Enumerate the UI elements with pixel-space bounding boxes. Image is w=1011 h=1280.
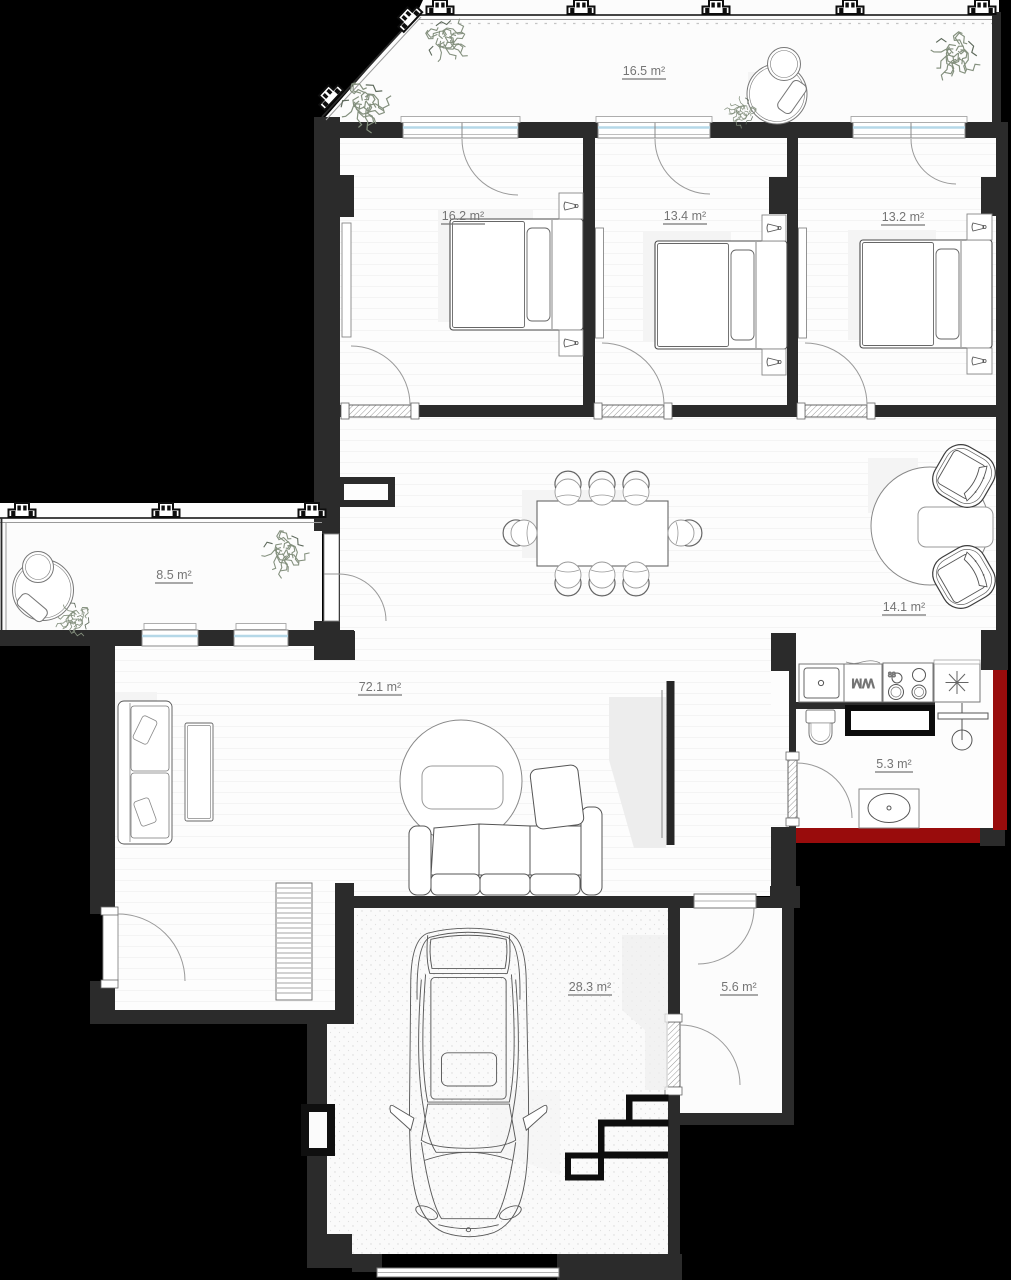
svg-text:28.3 m²: 28.3 m² xyxy=(569,980,611,994)
svg-text:8.5 m²: 8.5 m² xyxy=(156,568,191,582)
svg-text:WM: WM xyxy=(851,676,874,691)
svg-text:13.4 m²: 13.4 m² xyxy=(664,209,706,223)
svg-text:13.2 m²: 13.2 m² xyxy=(882,210,924,224)
svg-text:88: 88 xyxy=(888,672,896,679)
svg-text:16.5 m²: 16.5 m² xyxy=(623,64,665,78)
svg-text:72.1 m²: 72.1 m² xyxy=(359,680,401,694)
svg-text:14.1 m²: 14.1 m² xyxy=(883,600,925,614)
svg-text:5.6 m²: 5.6 m² xyxy=(721,980,756,994)
svg-text:5.3 m²: 5.3 m² xyxy=(876,757,911,771)
svg-text:16.2 m²: 16.2 m² xyxy=(442,209,484,223)
